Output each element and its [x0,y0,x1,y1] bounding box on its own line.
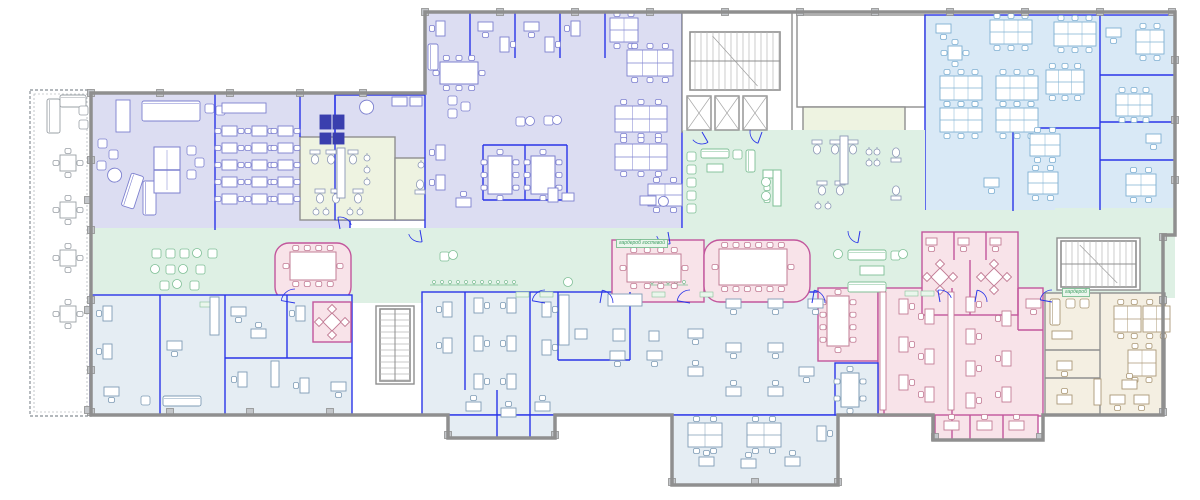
pouf-glyph [195,158,204,167]
stairs-icon [380,309,410,381]
cab-glyph [707,164,723,172]
cab-glyph [410,97,422,106]
pouf-glyph [544,116,553,125]
stairs-icon [690,32,780,90]
floor-plan-canvas [0,0,1200,500]
sofa-glyph [746,150,755,172]
pouf-glyph [687,191,696,200]
cab-glyph [337,148,345,198]
cab-glyph [548,188,558,202]
poufR-glyph [762,178,771,187]
pouf-glyph [79,106,88,115]
storage-top-white-zone [797,15,925,107]
tag-glyph [921,291,934,296]
cab-glyph [575,329,587,339]
cab-glyph [271,361,279,387]
sofa-glyph [701,149,729,158]
sofa-glyph [47,99,60,133]
pouf-glyph [687,165,696,174]
pouf-glyph [448,109,457,118]
room-label-guest-wardrobe: гардероб гостевой [616,239,668,248]
pouf-glyph [687,204,696,213]
pouf-glyph [166,249,175,258]
pouf-glyph [187,170,196,179]
elevator-icon [743,96,767,130]
pouf-glyph [97,161,106,170]
pouf-glyph [205,104,214,113]
cab-glyph [562,193,574,201]
cab-glyph [608,294,642,306]
cab-glyph [559,295,569,345]
cab-glyph [333,115,344,129]
sofa-glyph [1050,299,1060,325]
pouf-glyph [196,265,205,274]
tag-glyph [516,292,529,297]
sofa-glyph [848,282,886,292]
pouf-glyph [687,152,696,161]
cab-glyph [948,292,954,410]
cab-glyph [210,297,219,335]
pouf-glyph [733,150,742,159]
tag-glyph [700,292,713,297]
stairs-icon [1061,241,1136,287]
pouf-glyph [166,265,175,274]
poufR-glyph [179,265,188,274]
poufR-glyph [151,265,160,274]
pouf-glyph [1066,299,1075,308]
cab-glyph [116,100,130,132]
tag-glyph [905,291,918,296]
cab-glyph [640,196,656,205]
pouf-glyph [208,249,217,258]
conf-glyph [712,243,794,292]
cab-glyph [613,329,625,341]
cab-glyph [880,292,886,410]
poufR-glyph [193,249,202,258]
poufR-glyph [762,192,771,201]
pouf-glyph [190,281,199,290]
poufR-glyph [173,280,182,289]
cab-glyph [222,103,266,113]
room-label-wardrobe: гардероб [1062,288,1090,297]
pouf-glyph [687,178,696,187]
tround-glyph [658,196,669,207]
floor-plan: гардероб гостевой гардероб [0,0,1200,500]
pouf-glyph [152,249,161,258]
bench6-glyph [1116,88,1152,123]
poufR-glyph [564,278,573,287]
pouf-glyph [440,252,449,261]
poufR-glyph [834,250,843,259]
sofa-glyph [848,250,886,260]
tag-glyph [540,292,553,297]
pouf-glyph [180,249,189,258]
pouf-glyph [160,281,169,290]
conf-glyph [283,246,343,287]
pouf-glyph [109,150,118,159]
cab-glyph [1052,331,1072,339]
cab-glyph [649,331,659,341]
sofa-glyph [428,44,438,70]
pouf-glyph [461,102,470,111]
pingpong-glyph [154,147,180,193]
cab-glyph [320,115,331,129]
sofa-glyph [142,101,200,121]
cab-glyph [1094,379,1101,405]
pouf-glyph [79,120,88,129]
pouf-glyph [1080,299,1089,308]
elevator-icon [715,96,739,130]
cab-glyph [320,133,331,144]
poufR-glyph [899,250,908,259]
cab-glyph [333,133,344,144]
tag-glyph [652,292,665,297]
sofa-glyph [163,396,201,406]
cab-glyph [840,136,848,184]
pouf-glyph [516,117,525,126]
pouf-glyph [187,146,196,155]
conf-glyph [620,248,688,289]
elevator-icon [687,96,711,130]
poufR-glyph [449,251,458,260]
cab-glyph [860,266,884,275]
poufR-glyph [553,116,562,125]
office-bottom-center-grayblue-zone [422,292,882,485]
pouf-glyph [98,139,107,148]
pouf-glyph [448,96,457,105]
poufR-glyph [526,117,535,126]
cab-glyph [392,97,407,106]
pouf-glyph [141,396,150,405]
sofa-glyph [60,95,86,107]
